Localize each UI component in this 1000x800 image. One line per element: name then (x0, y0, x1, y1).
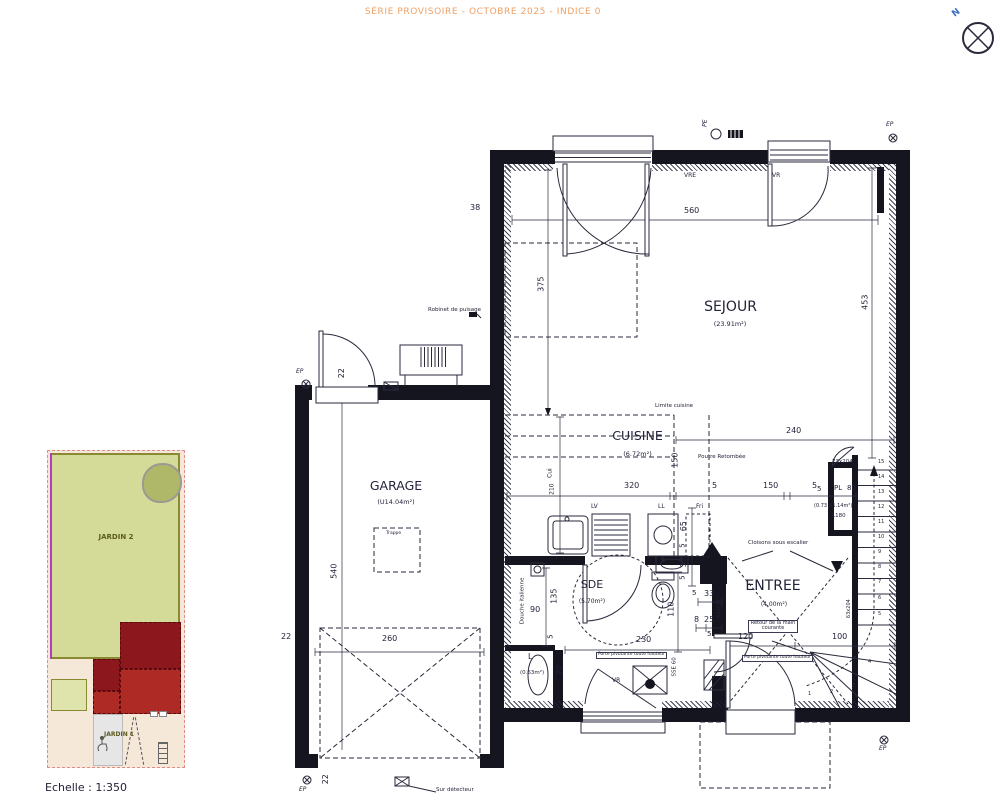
dim: 65 (680, 521, 688, 531)
window-shutter-box (768, 141, 830, 162)
dim: 230 (636, 636, 651, 644)
stair-step-number: 1 (808, 692, 811, 697)
dim: 120 (738, 633, 753, 641)
ep-symbol (303, 776, 311, 784)
room-area-sde: (5.70m²) (567, 599, 617, 605)
dim: 5 (707, 631, 711, 638)
robinet-label: Robinet de puisage (428, 308, 481, 314)
ep-label: EP (296, 369, 303, 375)
lv-label: LV (591, 504, 598, 510)
dim: 22 (338, 368, 346, 378)
parking-mark (135, 717, 145, 765)
door-size-label: 73x204 (832, 460, 853, 466)
window-mark (159, 711, 167, 717)
dim: 8 (694, 616, 699, 624)
dim: 150 (763, 482, 778, 490)
stair-step-number: 9 (878, 550, 881, 555)
dim: 5 (680, 543, 687, 547)
vre-label: VRE (684, 173, 696, 179)
building-block (93, 691, 120, 714)
door-size-label: 63x204 (847, 599, 852, 618)
shower-drain (531, 563, 544, 576)
stair-step-number: 3 (852, 684, 855, 689)
dim: 25 (704, 616, 714, 624)
douche-label: Douche italienne (520, 578, 526, 625)
dim: 90 (530, 606, 540, 614)
garage-side-door (316, 387, 378, 403)
fri-label: Fri (696, 504, 703, 510)
vr-label: VR (612, 678, 620, 684)
ep-label: EP (299, 787, 306, 793)
dim: 135 (550, 589, 558, 604)
room-area-sejour: (23.91m²) (700, 321, 760, 328)
dim: 260 (382, 635, 397, 643)
boundary-line (50, 453, 52, 659)
stair-step-number: 12 (878, 505, 884, 510)
window-mark (150, 711, 158, 717)
stair-step-number: 14 (878, 475, 884, 480)
parking-mark (125, 717, 135, 765)
cloisons-label: Cloisons sous escalier (748, 541, 808, 547)
dim: 100 (832, 633, 847, 641)
room-label-l: L (528, 653, 532, 661)
ep-label: EP (879, 746, 886, 752)
garden-patch (51, 679, 87, 711)
stairs (806, 465, 896, 708)
stair-step-number: 15 (878, 460, 884, 465)
pl-width: 80 (847, 485, 856, 492)
dim: 30 (680, 557, 688, 567)
dim: 5 (548, 634, 555, 638)
stair-step-number: 5 (878, 612, 881, 617)
pe-label: PE (703, 119, 709, 126)
room-label-sde: SDE (572, 579, 612, 591)
fridge (686, 514, 710, 556)
stair-step-number: 7 (878, 580, 881, 585)
dimension-lines (315, 168, 895, 750)
room-area-garage: (U14.04m²) (364, 499, 428, 506)
room-area-cuisine: (6.72m²) (610, 451, 665, 458)
window-shutter-box (581, 722, 665, 733)
dim: 38 (470, 204, 480, 212)
dim: 210 (550, 483, 556, 494)
stair-step-number: 10 (878, 535, 884, 540)
dim: 5 (712, 482, 717, 490)
trappe-label: Trappe (386, 532, 401, 537)
wheelchair-icon (95, 735, 109, 751)
room-area-entree: (4.00m²) (752, 602, 796, 608)
ep-symbol (302, 380, 310, 388)
dim: 5 (692, 590, 696, 597)
garage-door-swing (320, 628, 480, 758)
dim: 320 (624, 482, 639, 490)
pl-label: PL (834, 485, 842, 492)
ll-label: LL (658, 504, 665, 510)
dim: 560 (684, 207, 699, 215)
room-label-cuisine: CUISINE (605, 429, 670, 442)
room-label-entree: ENTREE (738, 579, 808, 594)
sse-label: SSE 60 (673, 657, 679, 676)
limite-cuisine-label: Limite cuisine (655, 404, 693, 410)
window-shutter-box (553, 136, 653, 151)
dim: 540 (330, 564, 338, 579)
dim: 70 (556, 665, 564, 675)
vr-label: VR (772, 173, 780, 179)
porte-pivotante-label: Porte pivotante toute hauteur (742, 655, 813, 662)
entry-door (726, 710, 795, 734)
pl-info-label: (0.73 U1.14m²) (814, 504, 852, 509)
dim: 5 (817, 486, 821, 493)
detecteur-label: Sur détecteur (436, 788, 474, 794)
north-arrow-icon (963, 23, 993, 53)
retour-label: Retour de la main courante (748, 620, 798, 633)
site-plan-inset: JARDIN 2 JARDIN 1 (47, 450, 185, 768)
dim: 240 (786, 427, 801, 435)
room-area-l: (0.63m²) (520, 671, 544, 677)
ep-symbol (889, 134, 897, 142)
stair-step-number: 2 (830, 690, 833, 695)
dim: 33 (704, 590, 714, 598)
stair-step-number: 6 (878, 596, 881, 601)
room-label-sejour: SEJOUR (688, 300, 773, 315)
ep-symbol (880, 736, 888, 744)
ep-label: EP (886, 122, 893, 128)
building-block (120, 622, 181, 669)
porte-pivotante-label: Porte pivotante toute hauteur (596, 652, 667, 659)
jardin2-label: JARDIN 2 (76, 534, 156, 541)
stair-mark (158, 742, 168, 764)
room-label-garage: GARAGE (362, 479, 430, 492)
dim: 150 (671, 453, 679, 468)
poutre-label: Poutre Retombée (698, 455, 746, 461)
building-block (93, 659, 120, 691)
stair-step-number: 4 (868, 660, 871, 665)
floor-plan-sheet: { "title": "SÉRIE PROVISOIRE - OCTOBRE 2… (0, 0, 1000, 800)
dim: 110 (667, 602, 675, 617)
dim: 5 (680, 575, 687, 579)
dim: 22 (281, 633, 291, 641)
dim: 375 (537, 277, 545, 292)
l180-label: L180 (832, 514, 846, 520)
dim: 22 (322, 774, 330, 784)
tree-icon (142, 463, 182, 503)
sde-door (583, 565, 587, 623)
stair-step-number: 11 (878, 520, 884, 525)
stair-step-number: 8 (878, 565, 881, 570)
cui-label: Cui (548, 468, 554, 478)
dim: 453 (861, 295, 869, 310)
door-size-label: 63x204 (717, 599, 722, 618)
building-block (120, 669, 181, 714)
pe-symbol (711, 129, 721, 139)
stair-step-number: 13 (878, 490, 884, 495)
